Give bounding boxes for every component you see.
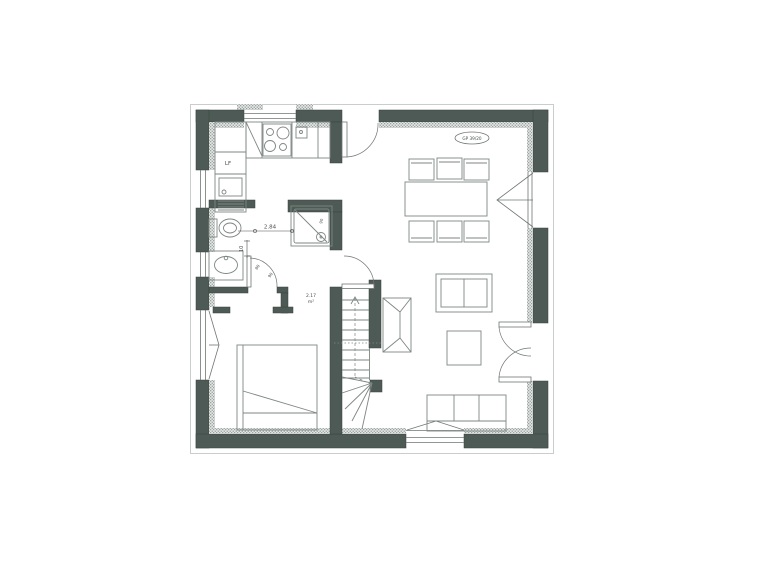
floor-plan-page: LF 90 <box>0 0 767 576</box>
bedroom <box>237 345 317 430</box>
sofa-large <box>427 395 506 431</box>
wall-thickness-label: 10 <box>239 246 245 252</box>
plan-stamp: GP 39/20 <box>455 132 489 144</box>
bathroom-window <box>201 252 206 277</box>
entrance-door <box>342 122 378 157</box>
bedroom-window <box>201 310 220 380</box>
living-window-bottom <box>406 421 464 443</box>
tv-unit <box>383 298 411 352</box>
washbasin-symbol <box>209 251 243 280</box>
floor-plan: LF 90 <box>0 0 767 576</box>
outer-outline <box>191 104 554 454</box>
svg-text:2.17: 2.17 <box>306 293 316 299</box>
coffee-table <box>447 331 481 365</box>
dishwasher: LF <box>215 152 246 174</box>
hall-area-label: 2.17 m² <box>306 293 316 305</box>
doors <box>247 122 531 382</box>
dining-chairs-bottom <box>409 221 489 242</box>
appliance-label: LF <box>225 161 231 167</box>
french-doors <box>499 322 531 382</box>
shutter-box <box>296 104 313 110</box>
kitchen-window-top <box>244 114 296 119</box>
stamp-label: GP 39/20 <box>462 136 482 141</box>
shutter-box <box>237 104 263 110</box>
dimension-line: 2.84 <box>238 225 294 233</box>
living-dining: GP 39/20 <box>383 132 506 431</box>
kitchen-small-sink <box>296 127 307 138</box>
kitchen-window-left <box>201 170 206 208</box>
door-width-label-a: 80 <box>254 263 261 270</box>
wall-thickness-dim: 10 <box>239 240 250 258</box>
door-width-label-b: 90 <box>267 271 274 278</box>
stair-winders <box>342 377 372 429</box>
bathroom: 90 2.84 10 80 90 <box>209 206 332 280</box>
dining-window <box>497 172 533 228</box>
counter-corner-line <box>246 122 262 156</box>
stove-symbol <box>263 124 291 156</box>
bed-symbol <box>237 345 317 430</box>
svg-text:m²: m² <box>308 300 314 305</box>
bathroom-door <box>247 256 277 287</box>
dining-table <box>405 182 487 216</box>
sofa-small <box>436 274 492 312</box>
kitchen: LF <box>215 122 330 212</box>
room-width-label: 2.84 <box>264 225 277 231</box>
dining-chairs-top <box>409 158 489 180</box>
interior-walls <box>209 122 382 434</box>
hall-door <box>342 256 374 289</box>
shower-size-label: 90 <box>318 218 324 225</box>
